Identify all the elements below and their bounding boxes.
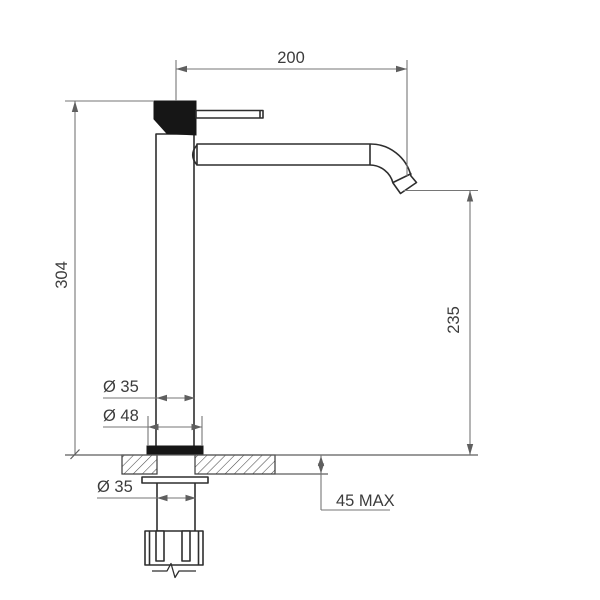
dim-max-deck-thickness: 45 MAX: [318, 455, 395, 510]
dim200-arrow-right: [396, 66, 407, 72]
counter-slab-right: [195, 455, 275, 474]
dim48-arrow-right: [192, 424, 203, 430]
dim48-arrow-left: [148, 424, 159, 430]
base-ring: [147, 446, 203, 454]
dim-overall-height: 304: [53, 101, 154, 459]
faucet-outline: [147, 101, 417, 454]
faucet-dimension-diagram: 200 304 235 Ø 35 Ø 48 Ø 3: [0, 0, 600, 600]
dim304-label: 304: [53, 261, 71, 289]
dim200-arrow-left: [176, 66, 187, 72]
dim48-label: Ø 48: [103, 407, 139, 425]
dim45-arrow-down: [318, 464, 324, 474]
handle-lever: [196, 111, 263, 119]
dim200-label: 200: [277, 49, 305, 67]
technical-drawing: 200 304 235 Ø 35 Ø 48 Ø 3: [0, 0, 600, 600]
dim235-label: 235: [445, 306, 463, 334]
dim235-arrow-bottom: [467, 444, 473, 455]
dim304-arrow-top: [72, 101, 78, 112]
dim45-label: 45 MAX: [336, 492, 395, 510]
dim35b-arrow-left: [157, 495, 168, 501]
handle-block: [154, 101, 196, 135]
faucet-body-column: [156, 134, 194, 447]
mounting-section: [122, 455, 328, 578]
washer: [142, 477, 208, 483]
dim235-arrow-top: [467, 191, 473, 202]
faucet-spout: [197, 144, 417, 194]
fixing-nut: [145, 531, 203, 565]
counter-slab-left: [122, 455, 157, 474]
dim35b-label: Ø 35: [97, 478, 133, 496]
nut-slot-right: [182, 531, 190, 561]
nut-slot-left: [156, 531, 164, 561]
dim35-label: Ø 35: [103, 378, 139, 396]
